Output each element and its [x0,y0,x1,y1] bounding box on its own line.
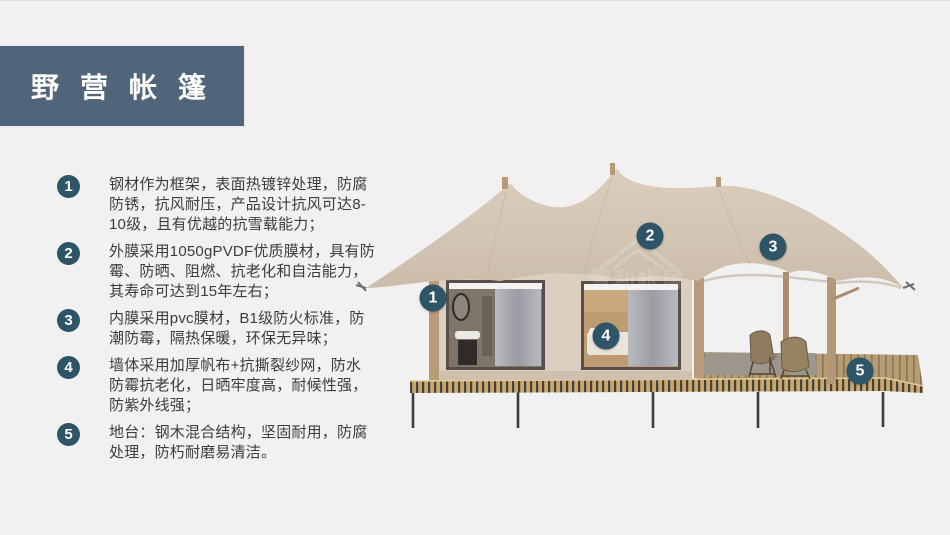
mirror [453,294,469,320]
sink [455,331,480,339]
diagram-marker-3: 3 [760,234,787,261]
window-bathroom [446,280,545,370]
diagram-marker-1: 1 [420,285,447,312]
diagram-marker-5: 5 [847,358,874,385]
diagram-marker-2: 2 [637,223,664,250]
watermark-text: 雪利帐居 [590,269,686,292]
diagram-marker-4: 4 [593,323,620,350]
slide: 野营帐篷 1 钢材作为框架，表面热镀锌处理，防腐防锈，抗风耐压，产品设计抗风可达… [0,0,950,535]
porch-brace [833,288,859,299]
porch-post-front [827,277,836,384]
corner-post-right [694,278,704,378]
tent-illustration: 雪利帐居 [0,1,950,535]
vanity-cabinet [458,340,477,365]
deck-legs [413,392,883,428]
wall-base-strip [433,371,692,380]
curtain [628,286,678,366]
